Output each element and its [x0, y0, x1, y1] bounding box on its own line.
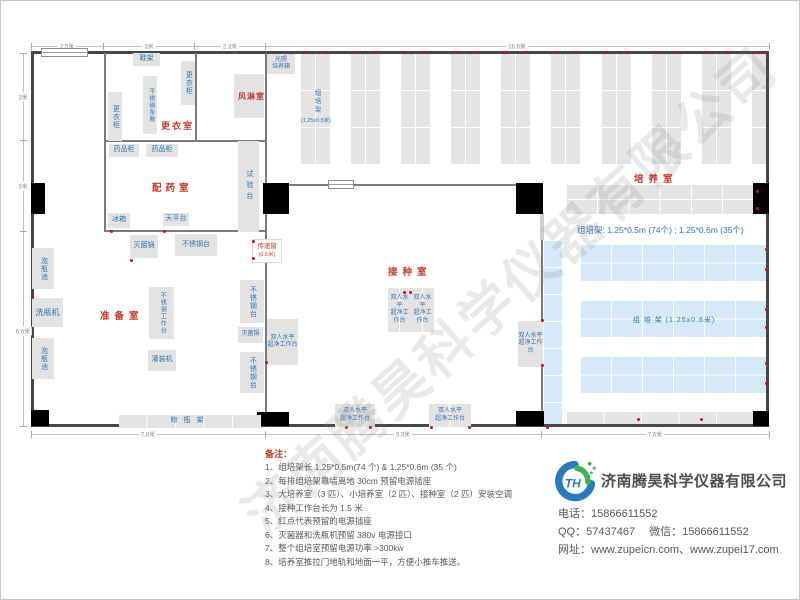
furniture-sterilizer-2: 灭菌锅: [238, 327, 263, 343]
company-name: 济南腾昊科学仪器有限公司: [601, 470, 787, 491]
dim-tick: [20, 426, 27, 427]
furniture-clean-bench-c1: 双人水平 超净工作台: [388, 288, 411, 332]
dim-label-left: 3米: [16, 93, 29, 102]
dim-label-top: 2.3米: [221, 42, 239, 51]
company-logo-icon: TH: [553, 458, 597, 506]
dim-label-left: 3米: [16, 182, 29, 191]
furniture-light-incubator: 光照 培养箱: [267, 54, 295, 74]
company-info: TH 济南腾昊科学仪器有限公司 电话：15866611552 QQ：574374…: [551, 456, 797, 556]
dim-label-top: 3米: [142, 42, 155, 51]
power-outlet-dot: [764, 51, 767, 54]
power-outlet-dot: [110, 230, 113, 233]
sliding-door-gap: [540, 213, 544, 240]
furniture-clean-bench-b2: 双人水平 超净工作台: [429, 404, 471, 427]
phone-row: 电话：15866611552: [558, 505, 657, 521]
culture-rack-vertical: [351, 54, 381, 164]
furniture-drying-rack: 晾瓶架: [119, 415, 261, 428]
dim-label-bottom: 9.3米: [394, 430, 412, 439]
furniture-test-bench: 试验台: [238, 141, 259, 232]
note-item: 2、每排组培架靠墙离地 30cm 预留电源插座: [265, 475, 557, 489]
note-item: 6、灭菌器和洗瓶机预留 380v 电源接口: [265, 529, 557, 543]
phone-value: 15866611552: [591, 508, 657, 520]
sliding-door: [41, 48, 88, 57]
wechat-label: 微信：: [649, 526, 682, 538]
power-outlet-dot: [756, 207, 759, 210]
furniture-balance-table: 天平台: [163, 213, 189, 226]
culture-rack-vertical: [451, 54, 481, 164]
furniture-shoe-rack: 鞋架: [133, 53, 160, 66]
structural-column: [31, 183, 45, 214]
furniture-clean-bench-left: 双人水平 超净工作台: [267, 319, 298, 365]
dim-label-top: 16.9米: [506, 42, 528, 51]
note-item: 3、大培养室（3 匹）、小培养室（2 匹）、接种室（2 匹）安装空调: [265, 488, 557, 502]
culture-rack-vertical: [551, 54, 581, 164]
dim-tick: [265, 431, 266, 438]
power-outlet-dot: [265, 361, 268, 364]
room-label-culture-room: 培养室: [634, 171, 678, 185]
culture-rack-blue: [544, 241, 562, 427]
dim-tick: [194, 43, 195, 50]
power-outlet-dot: [625, 51, 628, 54]
note-item: 4、接种工作台长为 1.5 米: [265, 502, 557, 516]
power-outlet-dot: [725, 51, 728, 54]
wall-inner: [104, 53, 106, 232]
power-outlet-dot: [31, 296, 34, 299]
power-outlet-dot: [354, 51, 357, 54]
power-outlet-dot: [404, 51, 407, 54]
note-item: 7、整个组培室预留电源功率 >300kw: [265, 542, 557, 556]
culture-rack-vertical: [652, 54, 682, 164]
culture-rack-vertical: [602, 54, 632, 164]
culture-rack-blue: [581, 245, 767, 282]
web-label: 网址：: [558, 544, 591, 556]
power-outlet-dot: [765, 248, 768, 251]
power-outlet-dot: [130, 259, 133, 262]
furniture-fridge: 冰箱: [108, 213, 130, 228]
rack-tag-size: (1.25x0.5米): [301, 116, 331, 124]
dim-tick: [31, 43, 32, 50]
logo-monogram: TH: [565, 477, 581, 491]
power-outlet-dot: [504, 51, 507, 54]
structural-column: [263, 183, 289, 214]
power-outlet-dot: [765, 308, 768, 311]
power-outlet-dot: [541, 319, 544, 322]
power-outlet-dot: [324, 51, 327, 54]
furniture-steel-table-1: 不锈钢台: [175, 234, 217, 256]
culture-rack-gray: [567, 185, 754, 215]
power-outlet-dot: [605, 51, 608, 54]
power-outlet-dot: [409, 291, 412, 294]
power-outlet-dot: [637, 418, 640, 421]
wall-inner: [195, 53, 197, 141]
furniture-steel-worktable: 不锈钢工作台: [149, 287, 174, 339]
notes-panel: 备注： 1、组培架长 1.25*0.5m(74 个) & 1.25*0.6m (…: [265, 447, 557, 569]
power-outlet-dot: [430, 426, 433, 429]
power-outlet-dot: [403, 291, 406, 294]
furniture-bottle-washer: 洗瓶机: [32, 298, 63, 327]
phone-label: 电话：: [558, 508, 591, 520]
room-label-inoculation-room: 接种室: [388, 264, 432, 278]
wechat-value: 15866611552: [682, 526, 748, 538]
wall-inner: [265, 184, 543, 186]
floor-plan-page: 济南腾昊科学仪器有限公司 鞋架更衣柜不锈钢条凳更衣柜光照 培养箱药品柜药品柜试验…: [0, 0, 800, 600]
room-label-air-shower: 风淋室: [238, 91, 265, 102]
furniture-medicine-cabinet-1: 药品柜: [109, 144, 139, 157]
notes-list: 1、组培架长 1.25*0.5m(74 个) & 1.25*0.6m (35 个…: [265, 461, 557, 569]
power-outlet-dot: [374, 51, 377, 54]
qq-value: 57437467: [586, 526, 635, 538]
power-outlet-dot: [765, 326, 768, 329]
dim-tick: [20, 231, 27, 232]
furniture-clean-bench-b1: 双人水平 超净工作台: [335, 404, 375, 427]
power-outlet-dot: [454, 51, 457, 54]
note-item: 1、组培架长 1.25*0.5m(74 个) & 1.25*0.6m (35 个…: [265, 461, 557, 475]
structural-column: [516, 411, 544, 426]
dim-tick: [103, 43, 104, 50]
furniture-filling-machine: 灌装机: [148, 350, 176, 371]
furniture-medicine-cabinet-2: 药品柜: [146, 144, 178, 157]
structural-column: [753, 411, 769, 426]
dim-tick: [769, 43, 770, 50]
power-outlet-dot: [756, 190, 759, 193]
furniture-locker-left: 更衣柜: [108, 92, 122, 141]
furniture-steel-table-2: 不锈钢台: [240, 280, 264, 323]
room-label-prep-room: 准备室: [100, 308, 144, 322]
rack-tag-name: 组培架: [311, 89, 321, 115]
power-outlet-dot: [700, 418, 703, 421]
furniture-soak-pool-1: 泡瓶池: [32, 248, 54, 289]
furniture-steel-bench: 不锈钢条凳: [143, 76, 157, 134]
dim-label-left: 6.6米: [14, 327, 32, 336]
furniture-soak-pool-2: 泡瓶池: [32, 338, 54, 379]
pass-window-label: 传递窗: [253, 243, 281, 252]
furniture-steel-table-3: 不锈钢台: [240, 352, 264, 393]
culture-rack-blue: [581, 357, 767, 394]
power-outlet-dot: [252, 240, 255, 243]
culture-rack-vertical: [501, 54, 531, 164]
rack-tag-blue: 组 培 架 (1.25x0.6米): [581, 301, 767, 338]
power-outlet-dot: [655, 51, 658, 54]
pass-window: 传递窗(0.6米): [252, 239, 282, 263]
power-outlet-dot: [546, 426, 549, 429]
culture-rack-vertical: [401, 54, 431, 164]
power-outlet-dot: [765, 268, 768, 271]
power-outlet-dot: [345, 426, 348, 429]
dim-tick: [31, 431, 32, 438]
pass-window-size: (0.6米): [253, 252, 281, 259]
notes-title: 备注：: [265, 447, 557, 461]
power-outlet-dot: [369, 426, 372, 429]
power-outlet-dot: [524, 51, 527, 54]
dim-tick: [541, 431, 542, 438]
power-outlet-dot: [424, 51, 427, 54]
furniture-clean-bench-c2: 双人水平 超净工作台: [411, 288, 434, 332]
rack-summary: 组培架: 1.25*0.5m (74个) ; 1.25*0.6m (35个): [577, 224, 744, 236]
power-outlet-dot: [554, 51, 557, 54]
power-outlet-dot: [765, 382, 768, 385]
power-outlet-dot: [705, 51, 708, 54]
power-outlet-dot: [755, 51, 758, 54]
power-outlet-dot: [765, 362, 768, 365]
power-outlet-dot: [574, 51, 577, 54]
room-label-dressing-room: 更衣室: [161, 119, 194, 132]
power-outlet-dot: [252, 257, 255, 260]
power-outlet-dot: [468, 426, 471, 429]
culture-rack-vertical: [702, 54, 732, 164]
power-outlet-dot: [474, 51, 477, 54]
dim-label-bottom: 7.6米: [646, 430, 664, 439]
note-item: 8、培养室推拉门地轨和地面一平，方便小推车推送。: [265, 556, 557, 570]
dim-tick: [20, 53, 27, 54]
furniture-locker-right: 更衣柜: [181, 61, 195, 105]
dim-tick: [265, 43, 266, 50]
room-label-dispensing-room: 配药室: [152, 180, 193, 194]
web-value: www.zupeicn.com、www.zupei17.com: [591, 544, 779, 556]
power-outlet-dot: [163, 230, 166, 233]
power-outlet-dot: [541, 364, 544, 367]
structural-column: [31, 410, 49, 426]
qq-wechat-row: QQ：57437467微信：15866611552: [558, 523, 749, 539]
dim-line-left: [23, 53, 24, 426]
sliding-door: [328, 180, 354, 189]
rack-tag-top: 组培架(1.25x0.5米): [294, 89, 338, 129]
furniture-clean-bench-right: 双人水平 超净工作台: [518, 321, 543, 367]
dim-tick: [769, 431, 770, 438]
structural-column: [516, 183, 543, 214]
furniture-sterilizer-1: 灭菌锅: [130, 235, 158, 258]
wall-outer: [766, 51, 769, 427]
qq-label: QQ：: [558, 526, 586, 538]
power-outlet-dot: [675, 51, 678, 54]
website-row: 网址：www.zupeicn.com、www.zupei17.com: [558, 541, 779, 557]
dim-label-bottom: 7.8米: [139, 430, 157, 439]
note-item: 5、红点代表预留的电源插座: [265, 515, 557, 529]
structural-column: [257, 412, 289, 426]
power-outlet-dot: [304, 51, 307, 54]
dim-tick: [20, 140, 27, 141]
